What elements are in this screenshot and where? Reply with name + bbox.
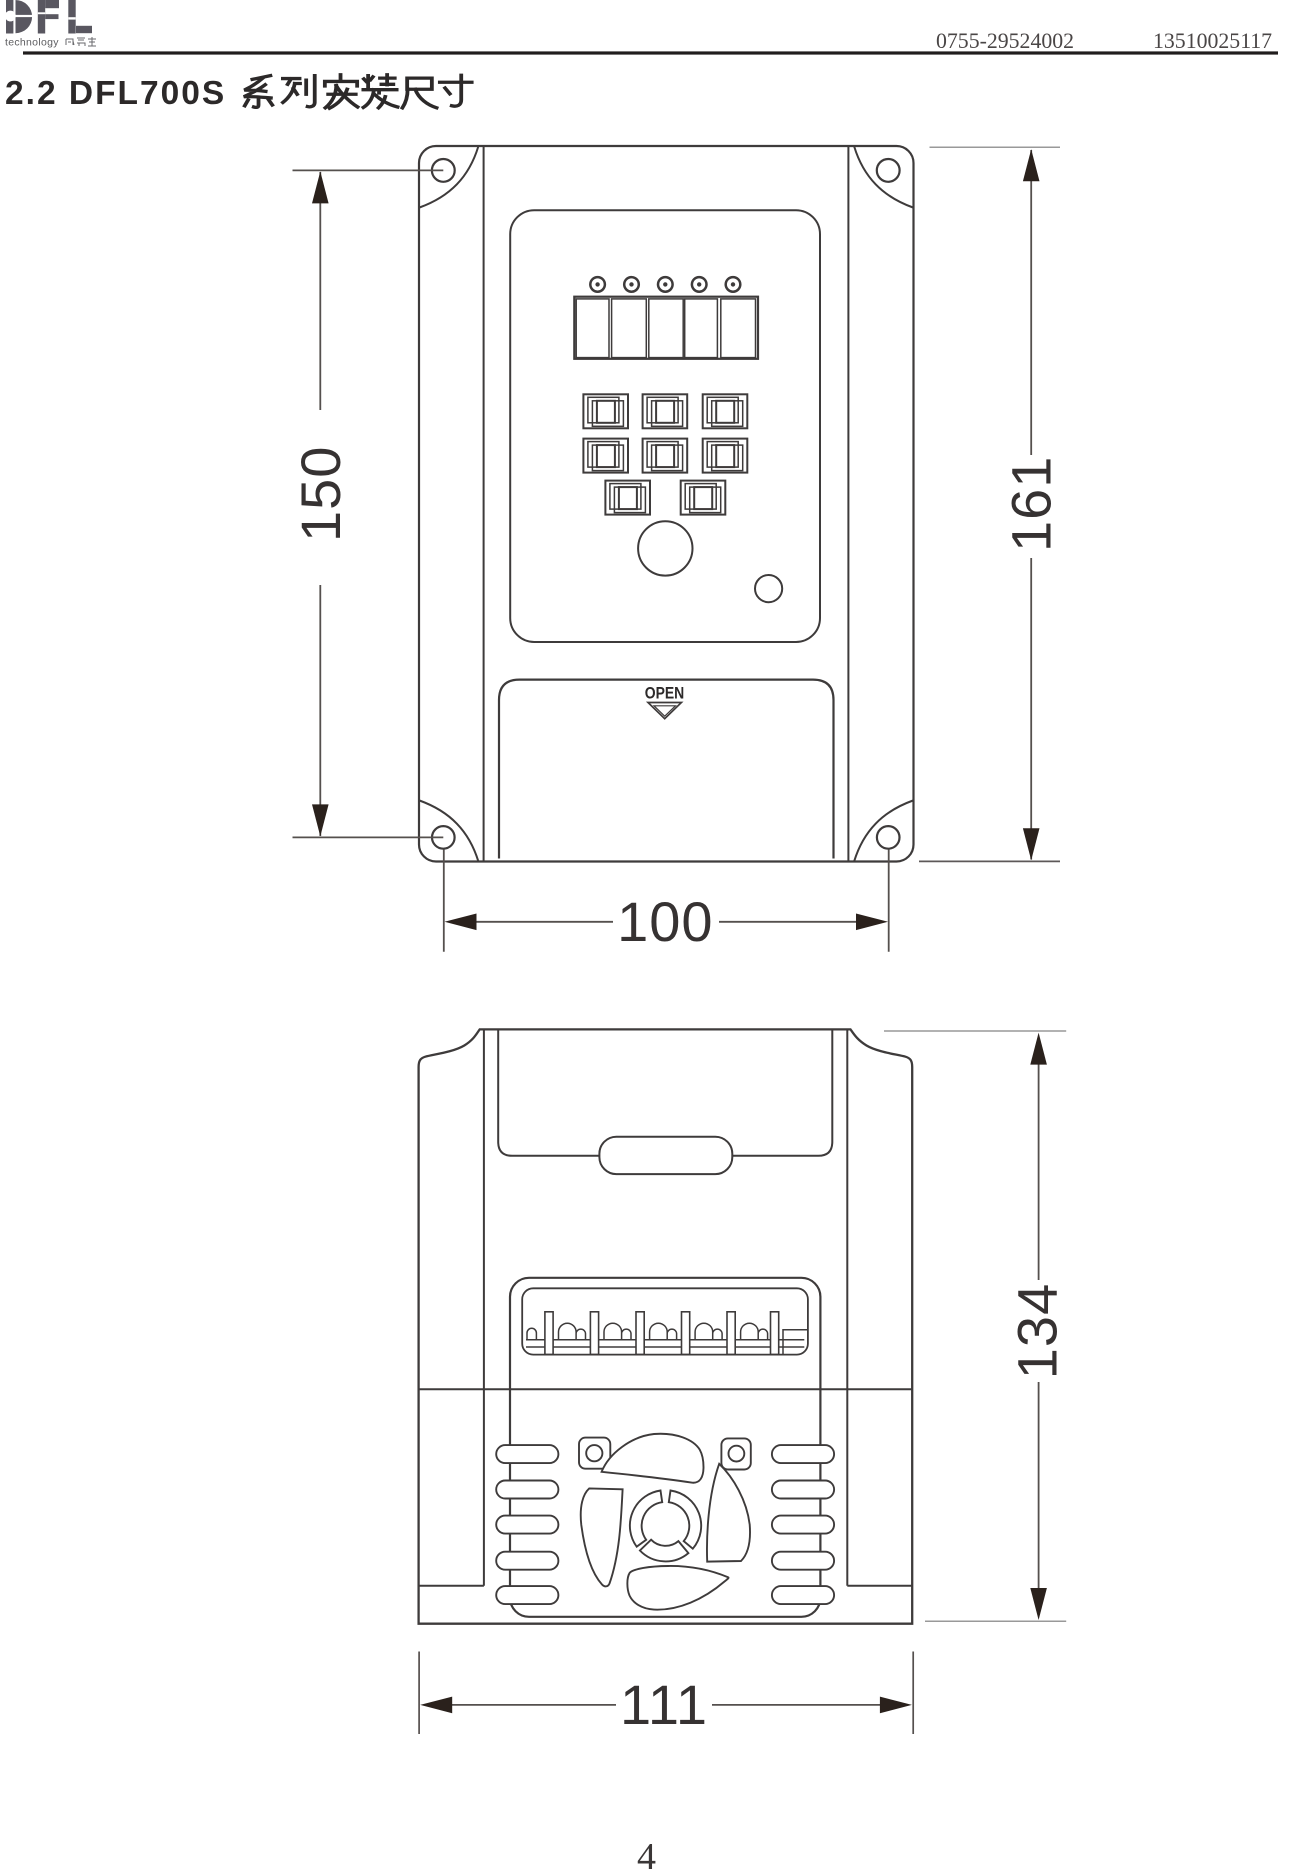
svg-text:technology: technology (5, 37, 59, 49)
svg-text:100: 100 (617, 890, 713, 953)
svg-text:134: 134 (1006, 1283, 1069, 1379)
svg-text:150: 150 (289, 446, 352, 542)
svg-text:161: 161 (1000, 456, 1063, 552)
svg-text:0755-29524002: 0755-29524002 (936, 29, 1074, 53)
svg-text:111: 111 (620, 1673, 708, 1736)
svg-text:OPEN: OPEN (645, 685, 685, 703)
svg-text:13510025117: 13510025117 (1153, 29, 1272, 53)
svg-text:4: 4 (637, 1836, 656, 1875)
svg-text:2.2 DFL700S: 2.2 DFL700S (5, 75, 226, 112)
